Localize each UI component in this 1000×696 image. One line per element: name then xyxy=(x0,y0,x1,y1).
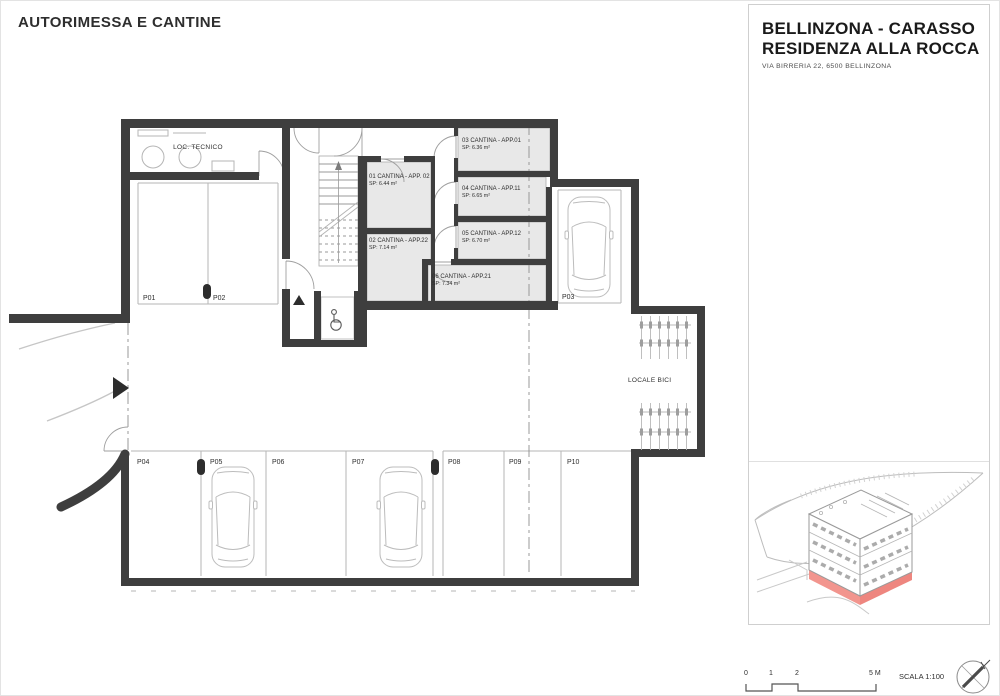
reference-triangle-icon xyxy=(293,295,305,305)
elevator-icon xyxy=(331,310,341,331)
parking-label-p02: P02 xyxy=(213,295,226,302)
scale-tick-5m: 5 M xyxy=(869,670,881,677)
project-title-line1: BELLINZONA - CARASSO xyxy=(762,19,989,39)
cantina-01-label: 01 CANTINA - APP. 02 xyxy=(369,174,430,180)
site-illustration xyxy=(749,461,989,624)
cantina-05-label: 05 CANTINA - APP.12 xyxy=(462,231,522,237)
north-compass-icon xyxy=(957,660,990,693)
cantina-03-area: SP: 6.36 m² xyxy=(462,145,490,151)
drawing-sheet: AUTORIMESSA E CANTINE xyxy=(0,0,1000,696)
parking-label-p08: P08 xyxy=(448,459,461,466)
floor-plan: AUTORIMESSA E CANTINE xyxy=(1,1,736,696)
cantina-02-label: 02 CANTINA - APP.22 xyxy=(369,238,429,244)
cantina-04-area: SP: 6.65 m² xyxy=(462,193,490,199)
cantina-06-label: 06 CANTINA - APP.21 xyxy=(432,274,492,280)
car-p05 xyxy=(209,467,257,567)
page-title: AUTORIMESSA E CANTINE xyxy=(18,14,221,31)
parking-label-p07: P07 xyxy=(352,459,365,466)
driveway-curves xyxy=(19,323,115,421)
parking-label-p10: P10 xyxy=(567,459,580,466)
cantina-04-label: 04 CANTINA - APP.11 xyxy=(462,186,521,192)
cantina-03-label: 03 CANTINA - APP.01 xyxy=(462,138,522,144)
scale-bar xyxy=(746,684,876,691)
cantina-06-area: SP: 7.34 m² xyxy=(432,281,460,287)
parking-label-p01: P01 xyxy=(143,295,156,302)
scale-label: SCALA 1:100 xyxy=(899,672,944,681)
info-panel: BELLINZONA - CARASSO RESIDENZA ALLA ROCC… xyxy=(748,4,990,625)
scale-tick-0: 0 xyxy=(744,670,748,677)
parking-label-p05: P05 xyxy=(210,459,223,466)
cantina-02-area: SP: 7.14 m² xyxy=(369,245,397,251)
curved-entry-wall xyxy=(61,454,125,507)
entry-arrow-icon xyxy=(113,377,129,399)
project-title-line2: RESIDENZA ALLA ROCCA xyxy=(762,39,989,59)
walls xyxy=(9,119,705,586)
cantina-05-area: SP: 6.70 m² xyxy=(462,238,490,244)
staircase xyxy=(319,156,358,266)
parking-label-p04: P04 xyxy=(137,459,150,466)
parking-label-p09: P09 xyxy=(509,459,522,466)
car-p03 xyxy=(565,197,613,297)
parking-label-p03: P03 xyxy=(562,294,575,301)
parking-label-p06: P06 xyxy=(272,459,285,466)
room-label-locale-bici: LOCALE BICI xyxy=(628,377,671,384)
room-label-loc-tecnico: LOC. TECNICO xyxy=(173,144,223,151)
scale-tick-1: 1 xyxy=(769,670,773,677)
project-address: VIA BIRRERIA 22, 6500 BELLINZONA xyxy=(762,63,989,70)
car-p07 xyxy=(377,467,425,567)
cantina-01-area: SP: 6.44 m² xyxy=(369,181,397,187)
scalebar-area: 0 1 2 5 M SCALA 1:100 xyxy=(741,656,1000,696)
building-sketch xyxy=(809,490,912,605)
scale-tick-2: 2 xyxy=(795,670,799,677)
